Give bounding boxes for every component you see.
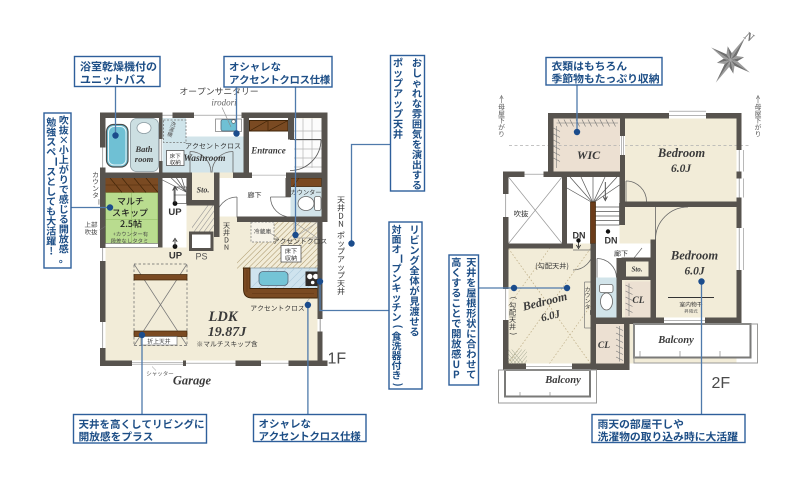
svg-text:CL: CL [598, 341, 610, 351]
svg-text:CL: CL [632, 296, 644, 306]
svg-text:1F: 1F [328, 351, 347, 368]
svg-text:Washroom: Washroom [183, 154, 225, 164]
svg-text:UP: UP [168, 207, 182, 218]
svg-text:Entrance: Entrance [250, 146, 286, 156]
svg-text:N: N [741, 28, 758, 46]
svg-text:Bath: Bath [134, 144, 152, 154]
svg-text:LDK: LDK [208, 309, 239, 325]
svg-text:Balcony: Balcony [544, 375, 581, 386]
svg-text:19.87J: 19.87J [208, 325, 248, 340]
svg-text:Bedroom: Bedroom [670, 249, 719, 263]
svg-text:Sto.: Sto. [197, 186, 210, 195]
svg-text:WIC: WIC [577, 148, 601, 162]
svg-text:6.0J: 6.0J [671, 163, 692, 175]
svg-text:2F: 2F [712, 375, 731, 392]
svg-text:DN: DN [605, 236, 618, 246]
svg-text:Balcony: Balcony [657, 335, 694, 346]
svg-text:Bedroom: Bedroom [657, 146, 706, 160]
svg-text:Sto.: Sto. [631, 266, 642, 274]
svg-text:UP: UP [169, 251, 183, 262]
svg-text:DN: DN [573, 231, 586, 241]
svg-text:irodori: irodori [211, 98, 237, 108]
svg-text:room: room [135, 154, 154, 164]
svg-text:6.0J: 6.0J [684, 266, 705, 278]
svg-text:Garage: Garage [173, 374, 212, 388]
svg-text:PS: PS [195, 252, 207, 262]
